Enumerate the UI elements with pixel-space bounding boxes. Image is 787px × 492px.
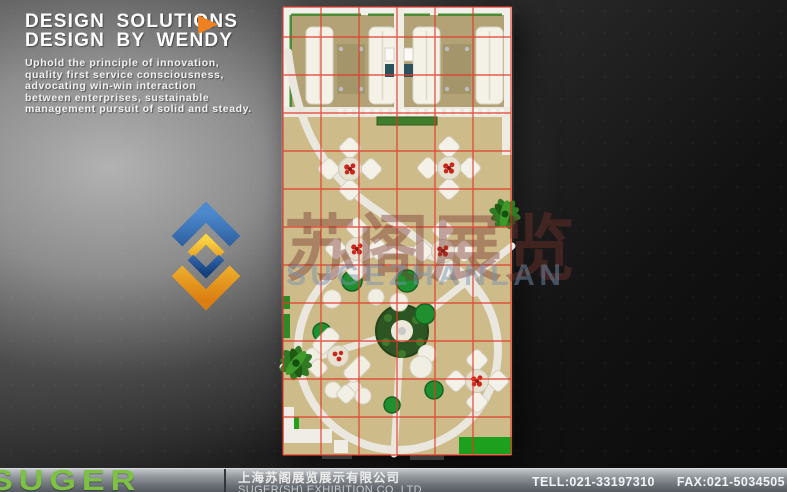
header-block: DESIGN SOLUTIONS DESIGN BY WENDY Uphold … — [25, 12, 252, 116]
footer-divider — [224, 469, 226, 492]
green-carpet-block — [459, 437, 512, 454]
footer-bar: SUGER 上海苏阁展览展示有限公司 SUGER(SH) EXHIBITION … — [0, 468, 787, 492]
suge-logo-watermark — [162, 212, 250, 300]
contact-fax: FAX:021-5034505 — [677, 475, 785, 489]
company-name-cn: 上海苏阁展览展示有限公司 — [238, 471, 422, 484]
contact-info: TELL:021-33197310 FAX:021-5034505 — [532, 475, 785, 489]
company-name-en: SUGER(SH) EXHIBITION CO.,LTD — [238, 484, 422, 492]
contact-tel: TELL:021-33197310 — [532, 475, 655, 489]
description-text: Uphold the principle of innovation, qual… — [25, 58, 252, 116]
arrow-right-icon — [197, 15, 219, 34]
presentation-board: DESIGN SOLUTIONS DESIGN BY WENDY Uphold … — [0, 0, 787, 492]
page-title: DESIGN SOLUTIONS DESIGN BY WENDY — [25, 12, 252, 50]
suger-brand-logo: SUGER — [0, 468, 141, 492]
company-block: 上海苏阁展览展示有限公司 SUGER(SH) EXHIBITION CO.,LT… — [238, 471, 422, 492]
